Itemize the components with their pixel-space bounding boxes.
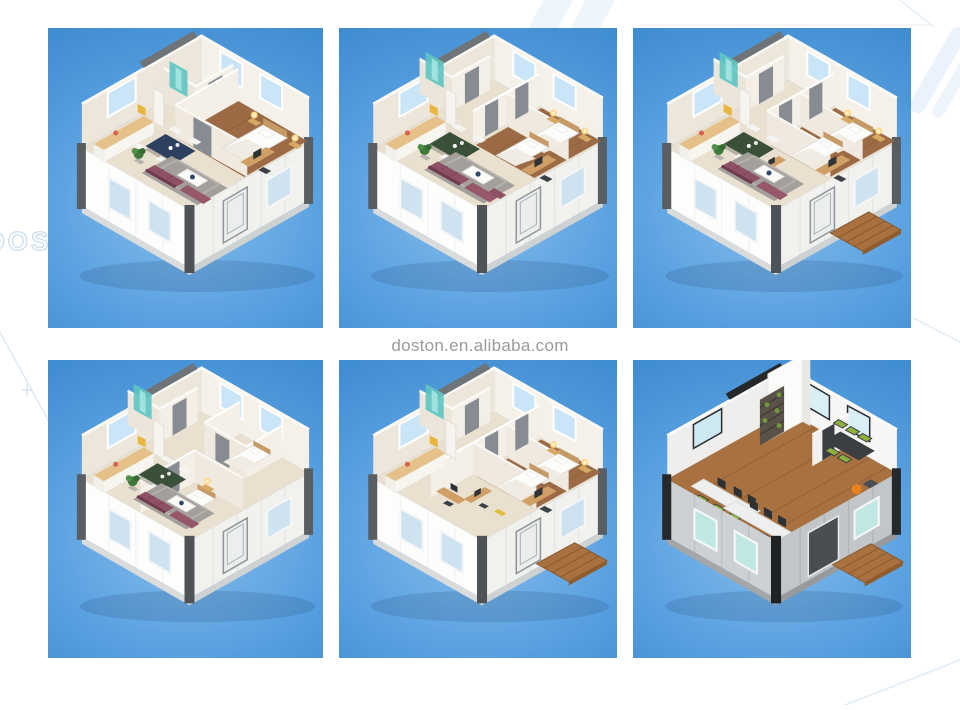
floorplan-image-2 xyxy=(339,28,617,328)
page: DOSTON xyxy=(0,0,960,705)
floorplan-image-4 xyxy=(48,360,323,658)
floorplan-image-3 xyxy=(633,28,911,328)
floorplan-image-5 xyxy=(339,360,617,658)
watermark-text: doston.en.alibaba.com xyxy=(0,336,960,356)
floorplan-image-1 xyxy=(48,28,323,328)
floorplan-image-6 xyxy=(633,360,911,658)
